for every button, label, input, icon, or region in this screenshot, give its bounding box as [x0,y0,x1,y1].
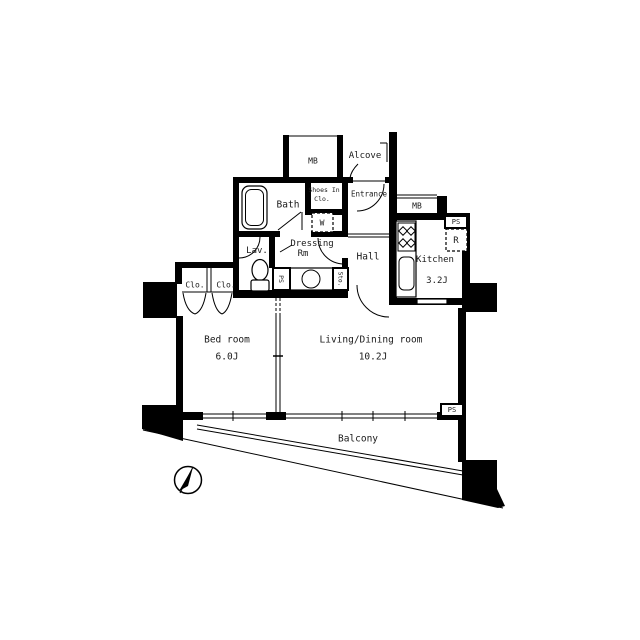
walls [175,132,470,462]
lavatory-label: Lav. [246,246,268,256]
dressing-label-line1: Dressing [290,239,333,249]
bath-door [278,212,302,230]
bedroom-size-label: 6.0J [216,352,239,363]
structural-columns [142,282,505,508]
closet-1-label: Clo. [185,281,204,290]
column-lower-left [142,405,183,441]
window-mullions [233,411,405,421]
pipe-space-dressing-label: PS [277,275,285,283]
shoes-closet-label-line2: Clo. [314,195,330,203]
bathtub [242,186,267,229]
bedroom-living-partition [273,298,283,412]
living-size-label: 10.2J [359,352,388,363]
entrance-label: Entrance [351,190,388,199]
hall-label: Hall [357,252,380,263]
living-window [286,414,437,418]
bedroom-label: Bed room [204,335,250,346]
column-right-kitchen [462,283,497,312]
column-upper-left [143,282,177,318]
balcony-label: Balcony [338,434,378,445]
shoes-closet-label-line1: Shoes In [308,186,339,194]
bath-label: Bath [277,200,300,211]
balcony-railing [143,425,503,508]
floorplan-drawing: MB Alcove Shoes In Clo. Entrance Bath W … [0,0,640,640]
floorplan-page: MB Alcove Shoes In Clo. Entrance Bath W … [0,0,640,640]
washing-machine-label: W [320,219,325,228]
kitchen-label: Kitchen [416,255,454,265]
kitchen-counter-opening [417,299,447,304]
meter-box-top-label: MB [308,157,318,166]
kitchen-size-label: 3.2J [426,276,448,286]
storage-label: Sto. [337,272,344,286]
north-arrow-icon [175,467,202,494]
pipe-space-balcony-label: PS [448,406,456,414]
meter-box-kitchen-edge [397,195,437,198]
hall-living-door-arc [357,285,389,317]
refrigerator-label: R [453,236,459,246]
vanity-basin [290,268,333,290]
bedroom-window [203,414,266,418]
pipe-space-kitchen-label: PS [452,218,460,226]
alcove-leader-line [350,164,358,178]
kitchen-counter [396,221,416,297]
windows [203,411,437,421]
dressing-label-line2: Rm [298,249,309,259]
alcove-label: Alcove [349,151,382,161]
meter-box-kitchen-label: MB [412,202,422,211]
toilet [251,260,269,292]
living-label: Living/Dining room [320,335,423,346]
closet-2-label: Clo. [216,281,235,290]
closet-doors [182,268,233,314]
entrance-step-line [348,234,389,237]
